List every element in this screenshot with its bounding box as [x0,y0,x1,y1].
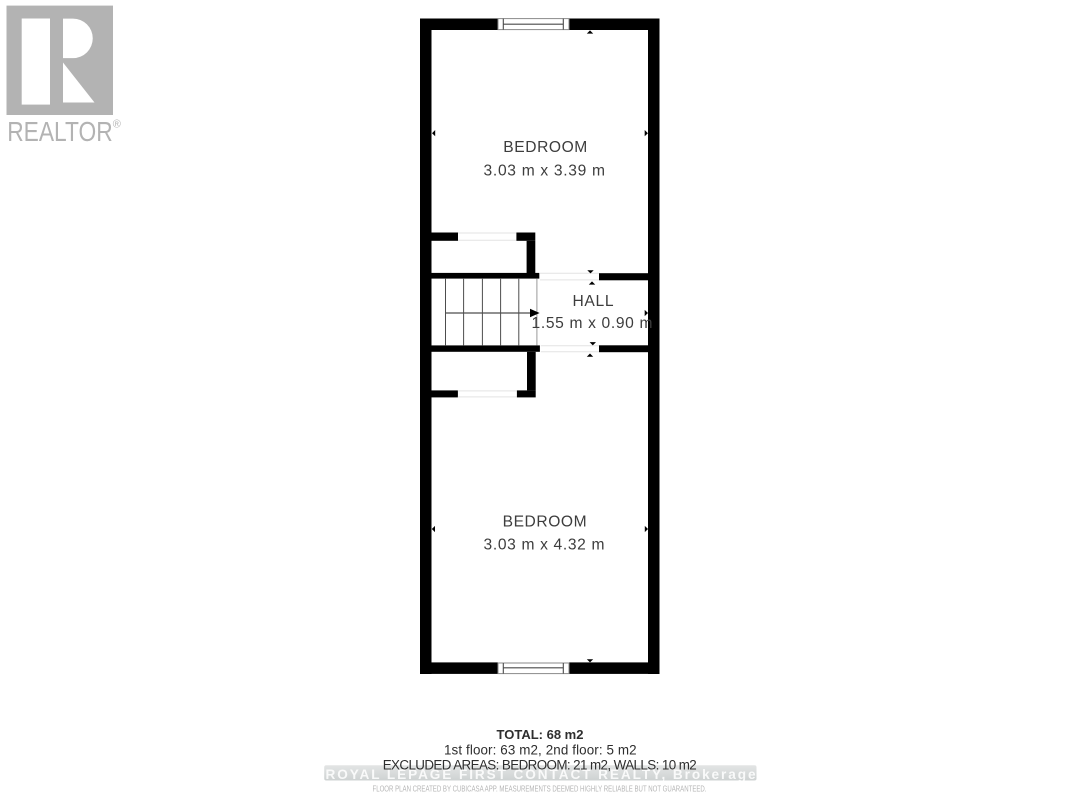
svg-text:3.03 m x 3.39 m: 3.03 m x 3.39 m [484,163,606,180]
svg-text:EXCLUDED AREAS: BEDROOM: 21 m2: EXCLUDED AREAS: BEDROOM: 21 m2, WALLS: 1… [383,757,697,772]
svg-text:®: ® [113,119,121,131]
svg-text:FLOOR PLAN CREATED BY CUBICASA: FLOOR PLAN CREATED BY CUBICASA APP. MEAS… [373,783,707,793]
svg-text:3.03 m x 4.32 m: 3.03 m x 4.32 m [484,537,605,554]
svg-text:TOTAL: 68 m2: TOTAL: 68 m2 [497,727,584,742]
svg-text:1st floor: 63 m2, 2nd floor: 5: 1st floor: 63 m2, 2nd floor: 5 m2 [444,743,637,758]
svg-text:BEDROOM: BEDROOM [503,139,587,156]
svg-text:HALL: HALL [573,293,614,310]
svg-text:1.55 m x 0.90 m: 1.55 m x 0.90 m [532,315,653,332]
svg-text:REALTOR: REALTOR [7,116,113,147]
svg-text:BEDROOM: BEDROOM [503,514,587,531]
